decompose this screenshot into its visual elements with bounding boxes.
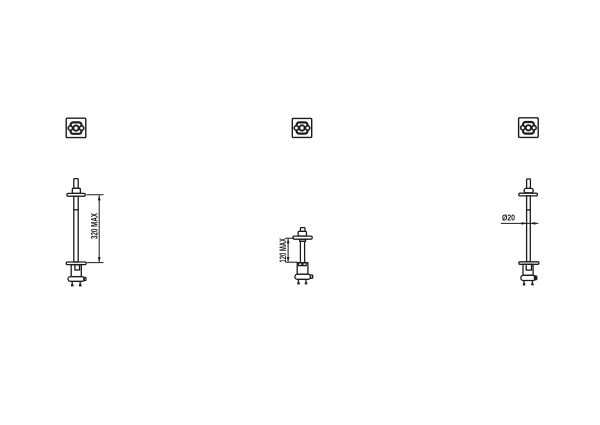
svg-text:320 MAX: 320 MAX [90,213,100,239]
svg-text:120 MAX: 120 MAX [278,238,288,262]
svg-text:Ø20: Ø20 [502,213,515,222]
